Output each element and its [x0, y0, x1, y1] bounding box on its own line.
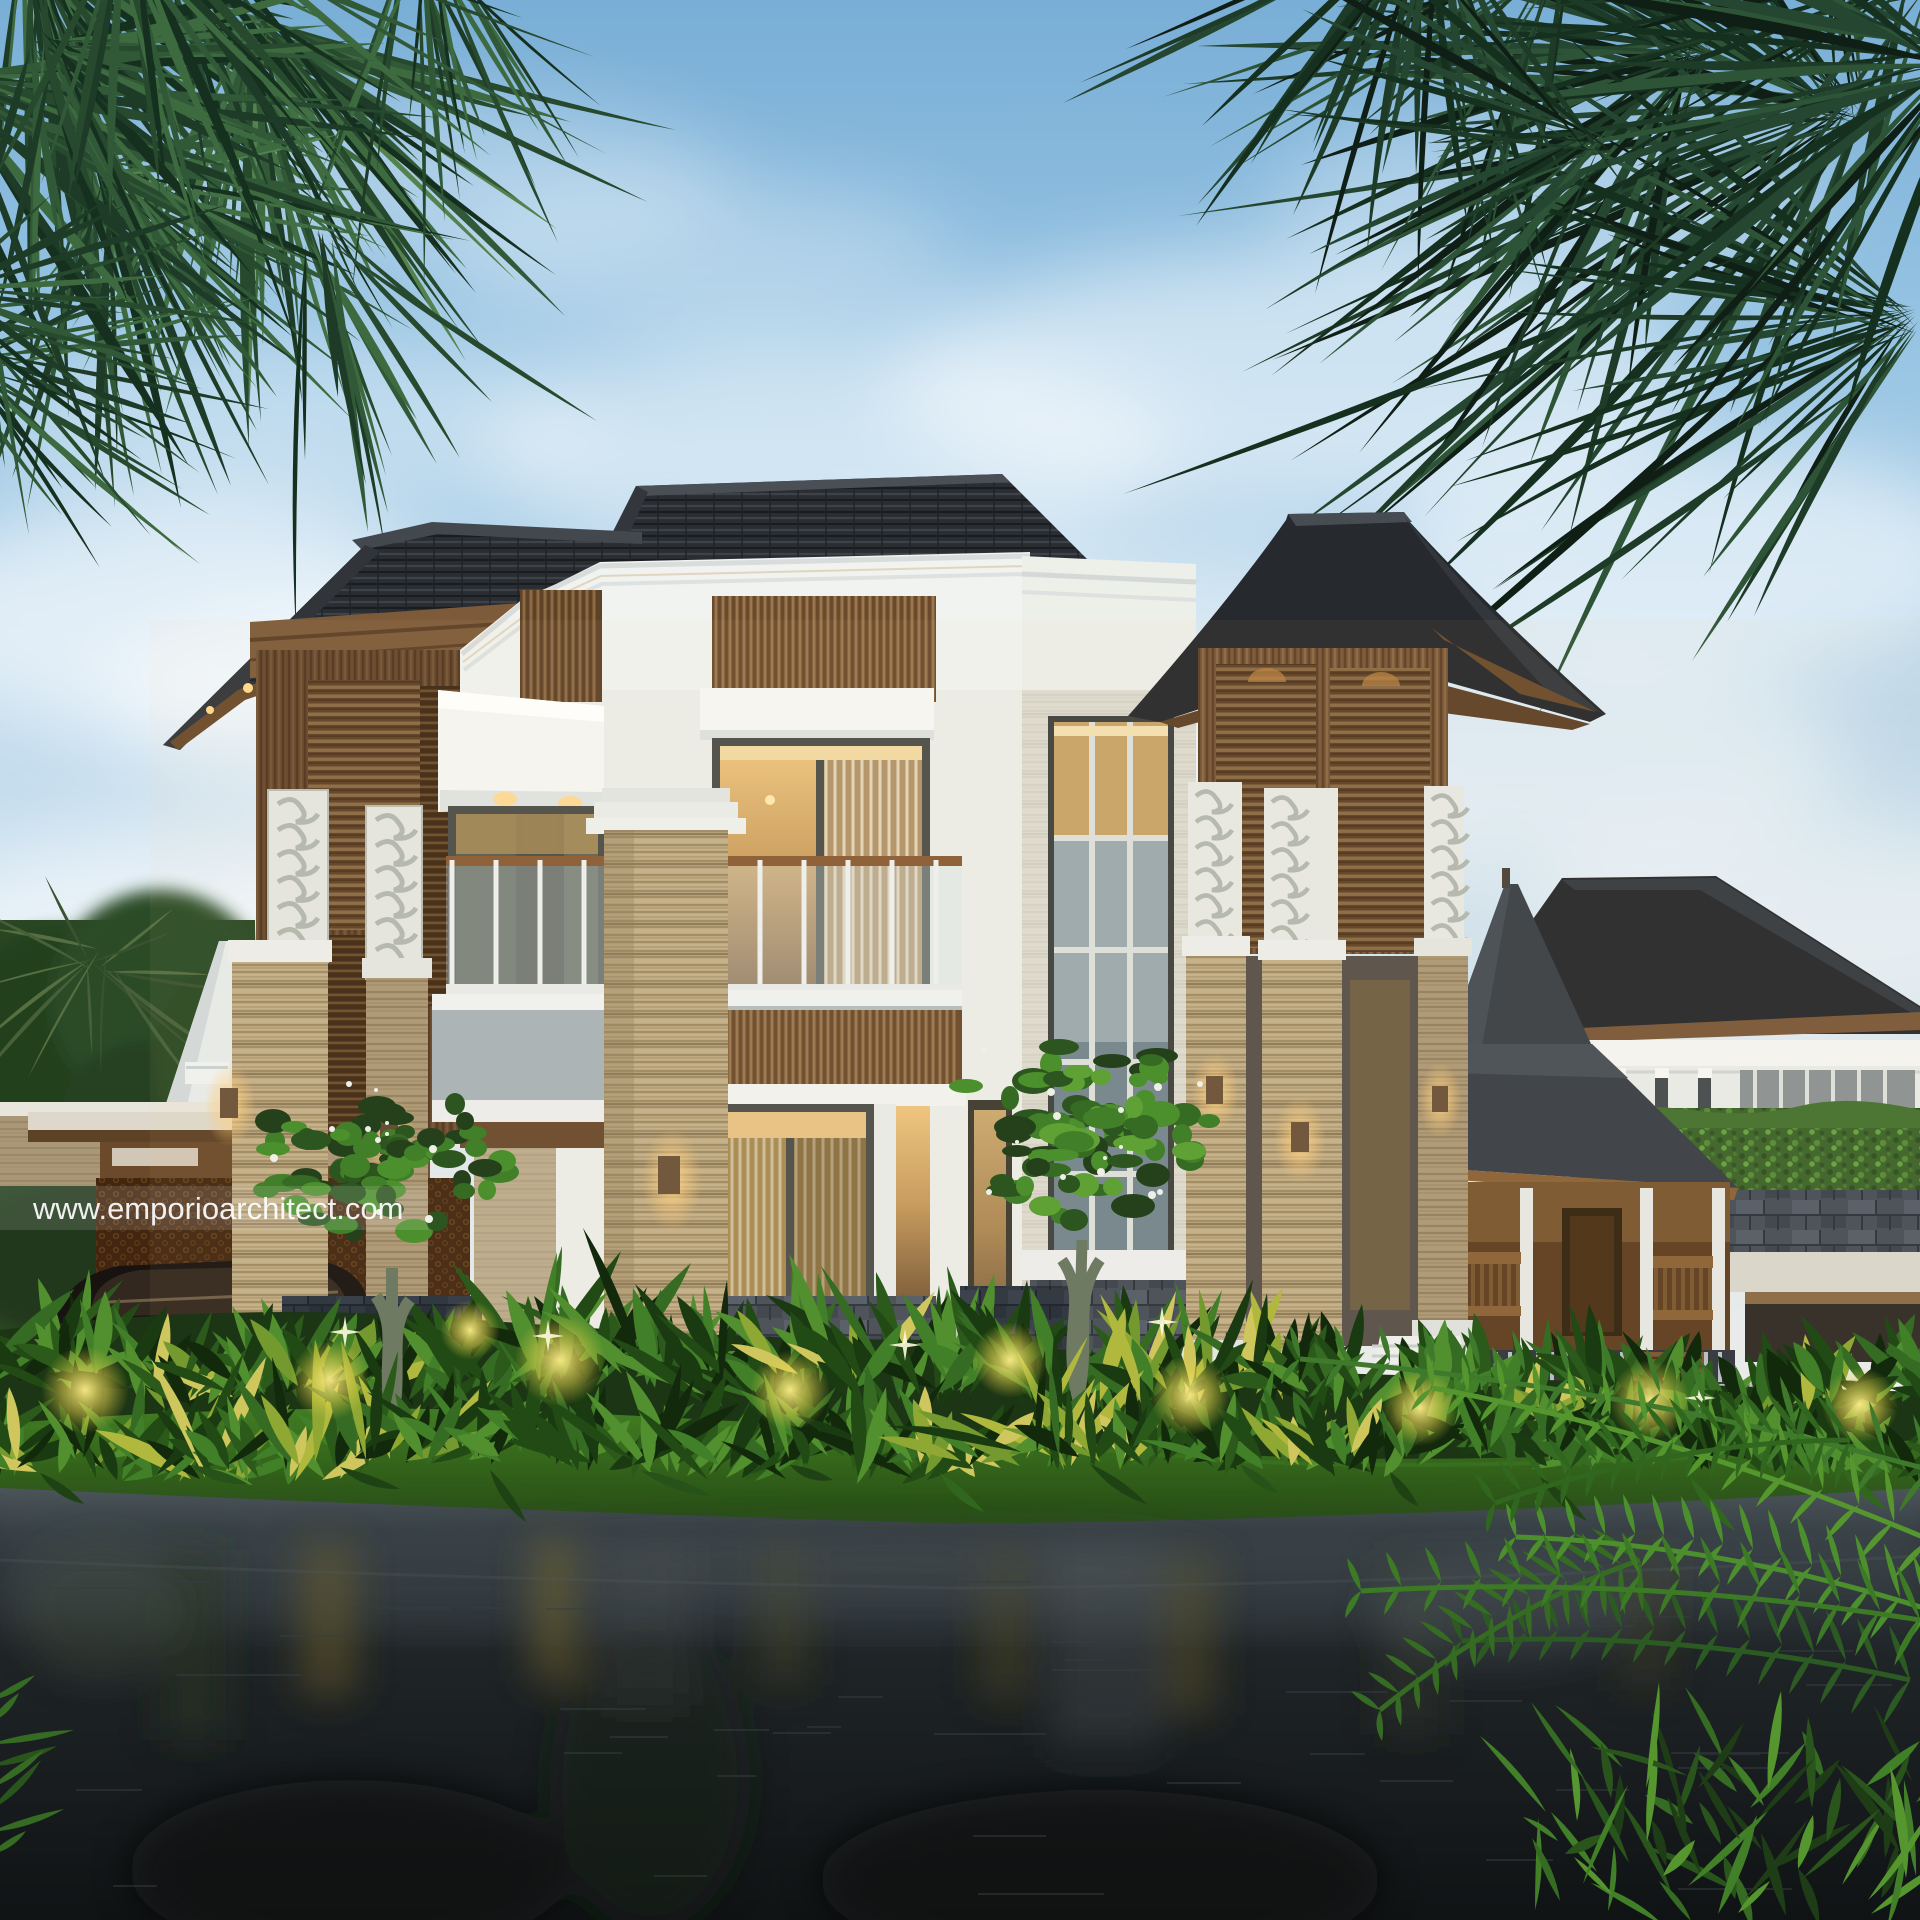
- svg-text:www.emporioarchitect.com: www.emporioarchitect.com: [32, 1191, 403, 1226]
